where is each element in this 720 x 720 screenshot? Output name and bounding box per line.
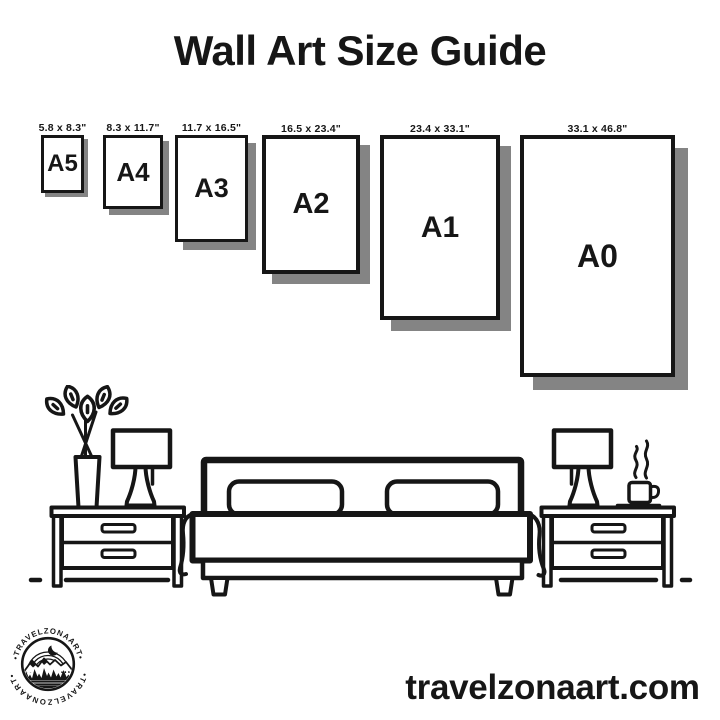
size-name-a1: A1 <box>421 213 459 243</box>
lamp-left-icon <box>113 431 170 506</box>
size-box-a3: 11.7 x 16.5"A3 <box>175 135 248 242</box>
size-dimension-label-a3: 11.7 x 16.5" <box>182 122 241 134</box>
bed-icon <box>180 460 545 595</box>
size-box-a1: 23.4 x 33.1"A1 <box>380 135 500 320</box>
nightstand-left-icon <box>52 508 185 587</box>
lamp-right-icon <box>554 431 611 506</box>
size-dimension-label-a1: 23.4 x 33.1" <box>410 123 470 135</box>
size-dimension-label-a2: 16.5 x 23.4" <box>281 123 341 135</box>
size-guide: 5.8 x 8.3"A58.3 x 11.7"A411.7 x 16.5"A31… <box>0 0 720 720</box>
size-name-a4: A4 <box>116 159 149 185</box>
brand-logo: •TRAVELZONAART• •TRAVELZONAART• <box>4 620 92 708</box>
size-name-a0: A0 <box>577 240 618 272</box>
nightstand-right-icon <box>542 508 675 587</box>
size-box-a0: 33.1 x 46.8"A0 <box>520 135 675 377</box>
coffee-cup-icon <box>618 441 660 506</box>
website-text: travelzonaart.com <box>385 668 720 708</box>
bedroom-illustration <box>0 385 720 600</box>
size-box-a4: 8.3 x 11.7"A4 <box>103 135 163 209</box>
size-box-a2: 16.5 x 23.4"A2 <box>262 135 360 274</box>
size-name-a2: A2 <box>292 190 329 219</box>
size-dimension-label-a5: 5.8 x 8.3" <box>39 122 87 134</box>
size-name-a5: A5 <box>47 152 78 176</box>
size-dimension-label-a0: 33.1 x 46.8" <box>568 123 628 135</box>
size-box-a5: 5.8 x 8.3"A5 <box>41 135 84 193</box>
size-name-a3: A3 <box>194 175 229 202</box>
size-dimension-label-a4: 8.3 x 11.7" <box>106 122 159 134</box>
